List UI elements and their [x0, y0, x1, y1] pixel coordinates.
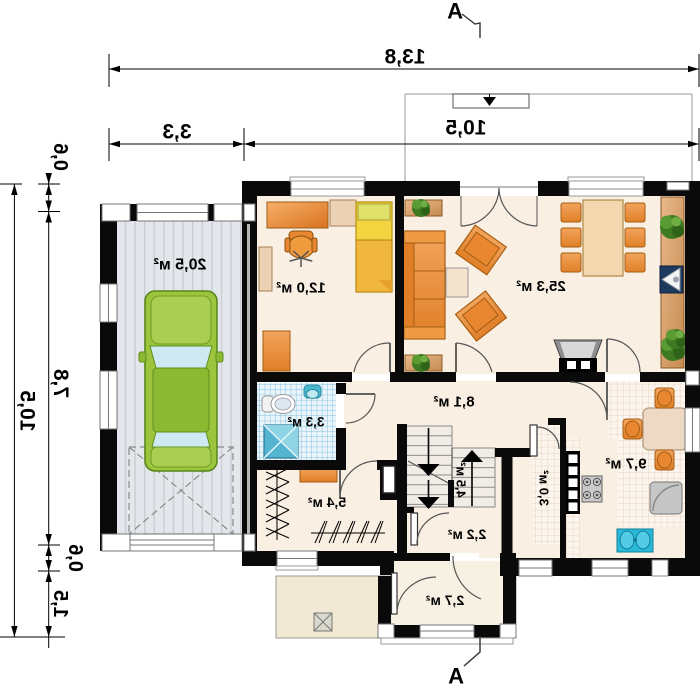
svg-text:7,8: 7,8 [49, 369, 72, 399]
svg-text:25,3 м²: 25,3 м² [516, 278, 565, 295]
svg-text:8,1 м²: 8,1 м² [433, 394, 474, 411]
svg-text:5,4 м²: 5,4 м² [307, 494, 346, 510]
svg-text:10,5: 10,5 [445, 117, 486, 140]
svg-text:A: A [447, 0, 463, 24]
svg-text:20,5 м²: 20,5 м² [154, 257, 207, 274]
svg-text:13,8: 13,8 [384, 46, 425, 69]
svg-text:9,7 м²: 9,7 м² [605, 456, 646, 473]
svg-text:3,3 м²: 3,3 м² [287, 415, 325, 430]
svg-text:3,3: 3,3 [162, 121, 191, 144]
svg-text:2,7 м²: 2,7 м² [425, 592, 464, 608]
svg-text:12,0 м²: 12,0 м² [276, 280, 325, 297]
svg-text:A: A [448, 664, 464, 689]
svg-text:4,5 м²: 4,5 м² [454, 462, 469, 498]
svg-text:0,6: 0,6 [49, 143, 71, 171]
svg-text:1,5: 1,5 [49, 590, 71, 618]
svg-text:0,6: 0,6 [64, 544, 86, 572]
svg-text:2,2 м²: 2,2 м² [447, 526, 486, 542]
svg-text:3,0 м²: 3,0 м² [537, 470, 552, 506]
svg-text:10,5: 10,5 [16, 390, 39, 431]
